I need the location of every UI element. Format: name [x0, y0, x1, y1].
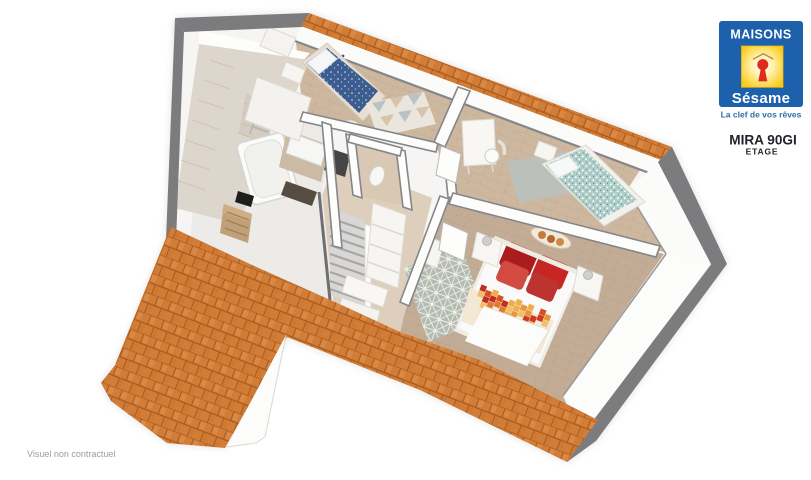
svg-text:MIRA 90GI: MIRA 90GI — [729, 133, 796, 148]
svg-text:ETAGE: ETAGE — [746, 147, 779, 157]
svg-text:Sésame: Sésame — [732, 90, 791, 107]
svg-text:La clef de vos rêves: La clef de vos rêves — [721, 110, 802, 120]
svg-text:Visuel non contractuel: Visuel non contractuel — [27, 449, 115, 459]
svg-text:MAISONS: MAISONS — [730, 28, 791, 42]
